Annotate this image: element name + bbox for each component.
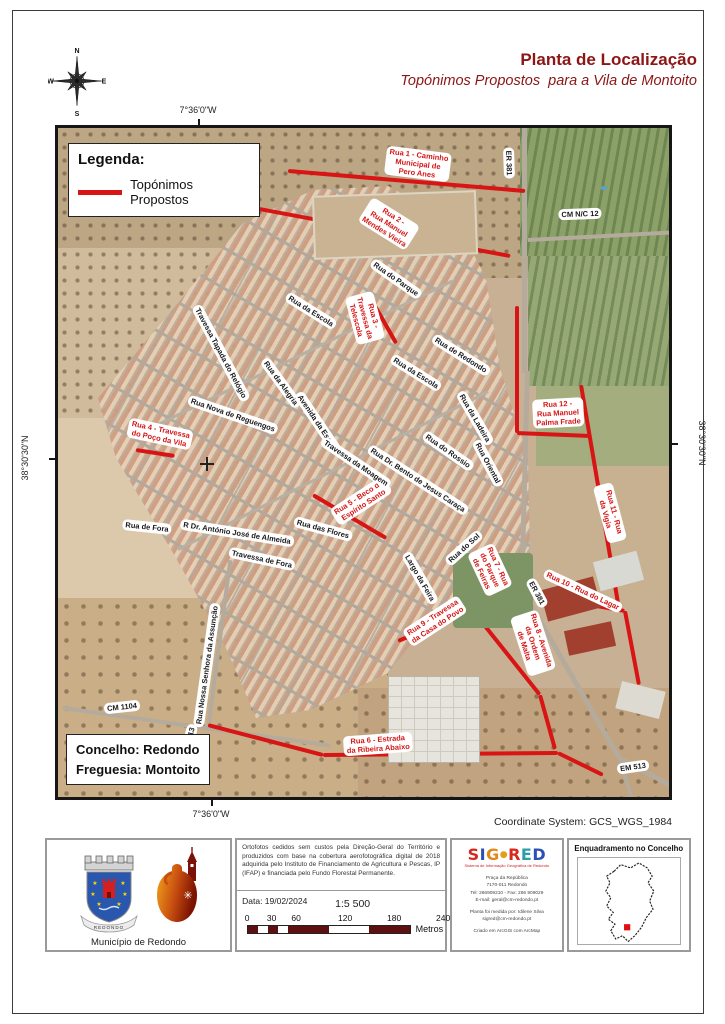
scale-ticks: 03060120180240 bbox=[247, 913, 443, 924]
montoito-marker bbox=[624, 924, 630, 930]
redondo-coat-of-arms: ★ ★ ★ ★ ★ ★ REDONDO bbox=[71, 846, 147, 934]
sigred-tagline: Sistema de Informação Geográfica de Redo… bbox=[452, 863, 561, 868]
svg-text:★: ★ bbox=[122, 891, 127, 898]
enquadramento-title: Enquadramento no Concelho bbox=[569, 840, 689, 853]
scale-bar bbox=[247, 925, 410, 934]
location-info-box: Concelho: Redondo Freguesia: Montoito bbox=[66, 734, 210, 785]
longitude-top: 7°36'0"W bbox=[179, 105, 216, 115]
address-line: Planta foi medida por: Idilene Silva bbox=[452, 909, 561, 916]
pinwheel-icon: ✳ bbox=[183, 890, 192, 902]
sigred-letter: ● bbox=[500, 850, 508, 860]
jug-church-logo: ✳ bbox=[147, 846, 207, 934]
scale-tick-label: 0 bbox=[245, 913, 250, 923]
sigred-logo: SIG●RED bbox=[452, 845, 561, 864]
svg-text:★: ★ bbox=[90, 891, 95, 898]
sigred-address: Praça da República7170-011 RedondoTel: 2… bbox=[452, 875, 561, 935]
scale-ratio: 1:5 500 bbox=[335, 898, 370, 910]
street-label: CM N/C 12 bbox=[558, 208, 601, 220]
credits-scale-box: Ortofotos cedidos sem custos pela Direçã… bbox=[235, 838, 447, 952]
latitude-left: 38°30'30"N bbox=[20, 435, 30, 480]
sigred-box: SIG●RED Sistema de Informação Geográfica… bbox=[450, 838, 563, 952]
page-subtitle: Topónimos Propostos para a Vila de Monto… bbox=[400, 73, 697, 89]
address-line: Praça da República bbox=[452, 875, 561, 882]
address-line: Tel: 266909210 - Fax: 266 909029 bbox=[452, 890, 561, 897]
top-tick bbox=[198, 119, 200, 126]
proposed-street-label: Rua 12 - Rua Manuel Palma Frade bbox=[532, 397, 584, 429]
sigred-letter: S bbox=[468, 845, 480, 864]
svg-text:★: ★ bbox=[96, 901, 101, 908]
svg-text:★: ★ bbox=[120, 880, 125, 887]
sigred-letter: D bbox=[532, 845, 546, 864]
street-label: ER 381 bbox=[503, 147, 515, 178]
green-field bbox=[528, 256, 669, 386]
footer: ★ ★ ★ ★ ★ ★ REDONDO bbox=[45, 838, 691, 952]
svg-text:★: ★ bbox=[92, 880, 97, 887]
legend-title: Legenda: bbox=[78, 151, 250, 168]
latitude-right: 38°30'30"N bbox=[697, 420, 707, 465]
swimming-pool bbox=[601, 186, 607, 190]
scale-tick-label: 240 bbox=[436, 913, 450, 923]
municipality-box: ★ ★ ★ ★ ★ ★ REDONDO bbox=[45, 838, 232, 952]
right-tick bbox=[671, 443, 678, 445]
legend-red-line-swatch bbox=[78, 190, 122, 195]
compass-n: N bbox=[74, 48, 79, 55]
coat-ribbon-text: REDONDO bbox=[93, 925, 123, 930]
scale-area: Data: 19/02/2024 1:5 500 03060120180240 … bbox=[237, 890, 445, 947]
plan-sheet: N E S W Planta de Localização Topónimos … bbox=[0, 0, 725, 1024]
proposed-toponym-line bbox=[515, 306, 519, 433]
enquadramento-box: Enquadramento no Concelho bbox=[567, 838, 691, 952]
title-block: Planta de Localização Topónimos Proposto… bbox=[400, 50, 697, 89]
date-label: Data: 19/02/2024 bbox=[242, 896, 307, 906]
compass-s: S bbox=[75, 111, 80, 118]
compass-rose: N E S W bbox=[48, 46, 106, 118]
scale-tick-label: 60 bbox=[291, 913, 300, 923]
scale-bar-wrap: 03060120180240 Metros bbox=[247, 913, 443, 934]
warehouse-red-roof-2 bbox=[564, 621, 616, 655]
road-er381-north bbox=[522, 128, 527, 373]
page-title: Planta de Localização bbox=[400, 50, 697, 70]
longitude-bottom: 7°36'0"W bbox=[192, 809, 229, 819]
compass-w: W bbox=[48, 79, 54, 86]
municipality-name: Município de Redondo bbox=[47, 937, 230, 948]
proposed-toponym-line bbox=[623, 611, 641, 686]
coordinate-system: Coordinate System: GCS_WGS_1984 bbox=[494, 816, 672, 828]
scale-tick-label: 30 bbox=[267, 913, 276, 923]
scale-tick-label: 180 bbox=[387, 913, 401, 923]
bottom-tick bbox=[211, 799, 213, 806]
compass-e: E bbox=[102, 79, 106, 86]
map-canvas: Legenda: Topónimos Propostos Concelho: R… bbox=[58, 128, 669, 797]
address-line: sigred@cm-redondo.pt bbox=[452, 916, 561, 923]
scale-tick-label: 120 bbox=[338, 913, 352, 923]
concelho-label: Concelho: Redondo bbox=[76, 740, 200, 760]
address-line: 7170-011 Redondo bbox=[452, 882, 561, 889]
ortofotos-credits: Ortofotos cedidos sem custos pela Direçã… bbox=[237, 840, 445, 890]
sigred-letter: R bbox=[508, 845, 521, 864]
legend-item-label: Topónimos Propostos bbox=[130, 177, 250, 207]
concelho-outline-map bbox=[577, 857, 681, 945]
freguesia-label: Freguesia: Montoito bbox=[76, 760, 200, 780]
left-tick bbox=[49, 458, 56, 460]
map-frame: Legenda: Topónimos Propostos Concelho: R… bbox=[55, 125, 672, 800]
scale-unit: Metros bbox=[416, 924, 444, 934]
legend-box: Legenda: Topónimos Propostos bbox=[68, 143, 260, 217]
sigred-letter: G bbox=[486, 845, 500, 864]
address-line: Criado em ArcGIS com ArcMap bbox=[452, 928, 561, 935]
sigred-letter: E bbox=[521, 845, 532, 864]
address-line: E-mail: geral@cm-redondo.pt bbox=[452, 897, 561, 904]
